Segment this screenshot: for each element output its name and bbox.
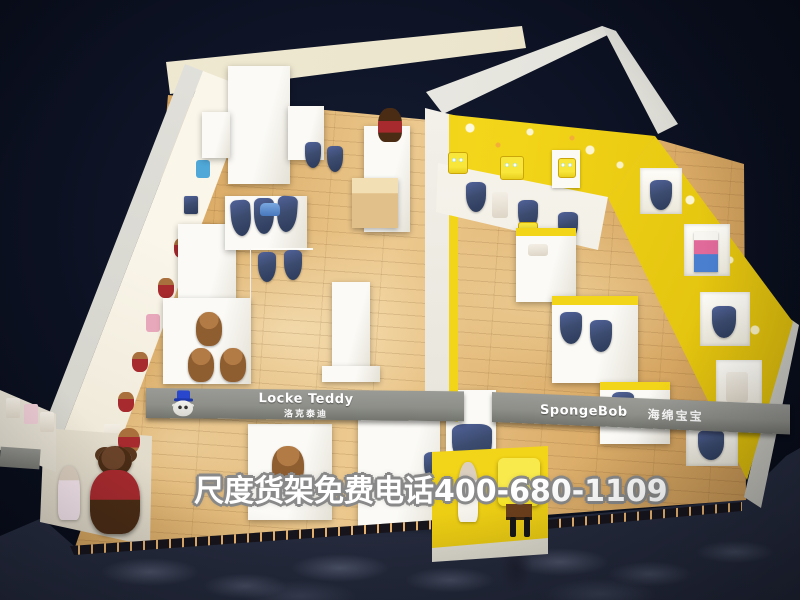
- hanging-garment: [492, 192, 508, 218]
- teddy-bear-on-shelf: [378, 108, 402, 142]
- mannequin-figure: [58, 466, 80, 520]
- spongebob-figure-leg: [524, 517, 530, 537]
- hanging-garment: [726, 372, 748, 402]
- display-tower: [228, 66, 290, 184]
- spongebob-decal: [558, 158, 576, 178]
- fascia-sign-locke-teddy: Locke Teddy 洛克泰迪: [146, 388, 464, 421]
- kid-poster: [694, 232, 718, 272]
- teddy-red-shirt: [118, 392, 134, 412]
- mascot-teddy-body: [90, 470, 140, 534]
- teddy-red-shirt: [132, 352, 148, 372]
- spongebob-decal: [448, 152, 468, 174]
- brand-logo-bear-icon: [170, 390, 196, 416]
- storefront-mini-sign: [0, 447, 41, 470]
- bear-head-icon: [173, 400, 193, 416]
- island-column: [332, 282, 370, 374]
- yellow-gondola: [516, 228, 576, 302]
- brand-name-spongebob: SpongeBob: [540, 402, 628, 419]
- store-render-scene: Locke Teddy 洛克泰迪 SpongeBob 海绵宝宝 尺度货架免费电话…: [0, 0, 800, 600]
- island-base: [322, 366, 380, 382]
- spongebob-figure-leg: [510, 517, 516, 537]
- watermark-text: 尺度货架免费电话400-680-1109: [194, 466, 660, 510]
- teddy-red-shirt: [158, 278, 174, 298]
- denim-garment: [184, 196, 198, 214]
- wood-display-cube: [352, 178, 398, 228]
- brand-name-cn-spongebob: 海绵宝宝: [648, 405, 704, 424]
- teddy-bear-figure: [196, 312, 222, 346]
- display-wing-shelf: [202, 112, 230, 158]
- teddy-bear-figure: [220, 348, 246, 382]
- wall-merch-item: [146, 314, 160, 332]
- teddy-bear-figure: [188, 348, 214, 382]
- blue-handbag: [260, 203, 280, 216]
- folded-stack: [528, 244, 548, 256]
- baby-garment: [40, 412, 54, 432]
- baby-garment: [6, 398, 20, 418]
- spongebob-decal: [500, 156, 524, 180]
- baby-garment: [24, 404, 38, 424]
- wall-merch-item: [196, 160, 210, 178]
- brand-name-cn-locke-teddy: 洛克泰迪: [206, 406, 406, 421]
